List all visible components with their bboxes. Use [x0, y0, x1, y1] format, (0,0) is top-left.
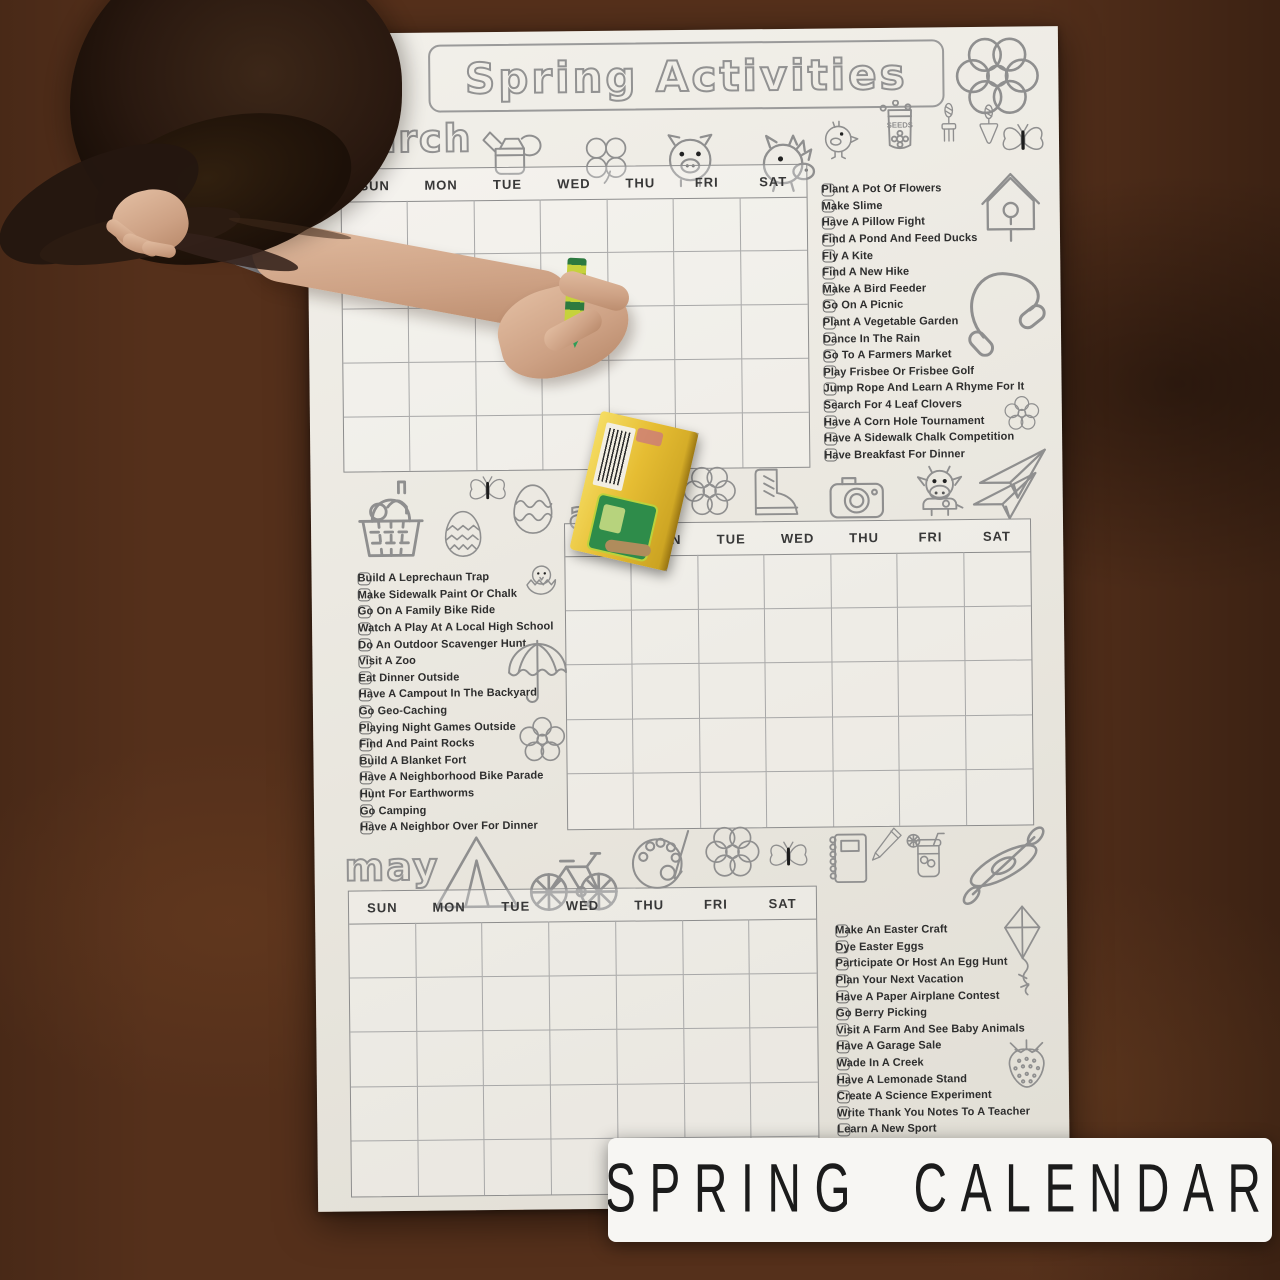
calendar-cell — [833, 717, 900, 772]
day-header: TUE — [698, 522, 765, 555]
calendar-cell — [833, 771, 900, 826]
calendar-cell — [417, 1031, 484, 1086]
checklist-item-label: Jump Rope And Learn A Rhyme For It — [824, 381, 1025, 395]
day-header: TUE — [474, 168, 541, 201]
calendar-cell — [832, 607, 899, 662]
mason-jar-drink-icon — [900, 827, 957, 884]
spring-activities-poster: Spring Activities march SUNMONTUEWEDTHUF… — [306, 26, 1070, 1212]
calendar-cell — [483, 976, 550, 1031]
calendar-cell — [750, 973, 817, 1028]
calendar-cell — [616, 920, 683, 975]
checklist-item-label: Make A Bird Feeder — [822, 282, 926, 295]
calendar-cell — [344, 417, 411, 472]
calendar-cell — [549, 921, 616, 976]
checklist-item-label: Write Thank You Notes To A Teacher — [837, 1105, 1030, 1119]
flower-icon — [702, 823, 763, 884]
checklist-item-label: Have A Sidewalk Chalk Competition — [824, 431, 1014, 445]
checklist-item-label: Participate Or Host An Egg Hunt — [836, 956, 1008, 970]
calendar-cell — [609, 360, 676, 415]
may-label: may — [344, 845, 439, 890]
calendar-cell — [684, 1029, 751, 1084]
calendar-cell — [343, 309, 410, 364]
calendar-cell — [765, 553, 832, 608]
day-header: THU — [607, 166, 674, 199]
calendar-cell — [741, 251, 808, 306]
calendar-cell — [699, 663, 766, 718]
calendar-cell — [418, 1141, 485, 1196]
checklist-item-label: Find And Paint Rocks — [359, 737, 474, 750]
strawberry-icon — [996, 1034, 1057, 1095]
checklist-item-label: Find A New Hike — [822, 266, 909, 279]
calendar-cell — [477, 416, 544, 471]
calendar-cell — [832, 662, 899, 717]
checklist-item-label: Have A Garage Sale — [836, 1040, 941, 1053]
calendar-cell — [766, 663, 833, 718]
cow-icon — [906, 457, 973, 524]
calendar-cell — [766, 717, 833, 772]
day-header: FRI — [897, 520, 964, 553]
checklist-item-label: Have A Pillow Fight — [822, 216, 925, 229]
calendar-cell — [550, 975, 617, 1030]
checklist-item-label: Plan Your Next Vacation — [836, 973, 964, 986]
calendar-cell — [765, 608, 832, 663]
calendar-cell — [675, 359, 742, 414]
calendar-cell — [550, 1030, 617, 1085]
calendar-cell — [350, 977, 417, 1032]
checklist-item-label: Build A Blanket Fort — [359, 754, 466, 767]
calendar-cell — [700, 773, 767, 828]
checklist-item-label: Playing Night Games Outside — [359, 720, 516, 734]
checklist-item-label: Have A Lemonade Stand — [837, 1073, 967, 1086]
checklist-item-label: Create A Science Experiment — [837, 1089, 992, 1103]
calendar-cell — [699, 609, 766, 664]
calendar-cell — [351, 1087, 418, 1142]
day-header: WED — [541, 167, 608, 200]
door-trim — [0, 183, 90, 835]
checklist-item-label: Learn A New Sport — [837, 1123, 936, 1136]
kayak-icon — [958, 820, 1049, 911]
calendar-cell — [966, 715, 1033, 770]
checklist-item-label: Go On A Picnic — [823, 299, 904, 312]
calendar-cell — [897, 552, 964, 607]
checklist-item-label: Dance In The Rain — [823, 332, 920, 345]
calendar-cell — [740, 197, 807, 252]
calendar-cell — [683, 919, 750, 974]
checklist-item-label: Do An Outdoor Scavenger Hunt — [358, 637, 526, 651]
umbrella-icon — [502, 639, 573, 710]
calendar-cell — [742, 413, 809, 468]
checklist-item-label: Go To A Farmers Market — [823, 348, 951, 361]
calendar-cell — [351, 1141, 418, 1196]
calendar-cell — [418, 1086, 485, 1141]
calendar-cell — [683, 974, 750, 1029]
calendar-cell — [742, 359, 809, 414]
calendar-cell — [964, 606, 1031, 661]
checklist-item-label: Dye Easter Eggs — [835, 940, 923, 953]
checklist-item-label: Watch A Play At A Local High School — [358, 620, 554, 634]
calendar-cell — [485, 1140, 552, 1195]
picnic-basket-icon — [340, 471, 441, 572]
day-header: WED — [764, 522, 831, 555]
calendar-cell — [684, 1083, 751, 1138]
april-calendar-grid — [565, 551, 1033, 829]
day-header: MON — [408, 168, 475, 201]
checklist-item-label: Go Camping — [360, 804, 427, 817]
calendar-cell — [410, 416, 477, 471]
calendar-cell — [416, 922, 483, 977]
day-header: SAT — [964, 519, 1031, 552]
kite-icon — [991, 902, 1054, 999]
calendar-cell — [965, 661, 1032, 716]
calendar-cell — [741, 305, 808, 360]
calendar-cell — [633, 719, 700, 774]
calendar-cell — [483, 921, 550, 976]
photo-scene: Spring Activities march SUNMONTUEWEDTHUF… — [0, 0, 1280, 1280]
easter-egg-wavy-icon — [503, 479, 564, 540]
checklist-item-label: Have A Corn Hole Tournament — [824, 414, 985, 428]
calendar-cell — [831, 553, 898, 608]
calendar-cell — [698, 554, 765, 609]
checklist-item-label: Play Frisbee Or Frisbee Golf — [823, 365, 974, 379]
calendar-cell — [416, 977, 483, 1032]
day-header: SAT — [749, 887, 816, 920]
day-header: THU — [616, 888, 683, 921]
butterfly-icon — [997, 112, 1050, 165]
checklist-item-label: Have A Neighborhood Bike Parade — [360, 770, 544, 784]
checklist-item-label: Make Slime — [822, 200, 883, 213]
calendar-cell — [674, 251, 741, 306]
checklist-item-label: Have A Paper Airplane Contest — [836, 989, 1000, 1003]
calendar-cell — [751, 1082, 818, 1137]
checklist-march: Plant A Pot Of Flowers Make Slime Have A… — [821, 179, 1060, 464]
calendar-cell — [899, 661, 966, 716]
calendar-cell — [675, 305, 742, 360]
april-calendar: SUNMONTUEWEDTHUFRISAT — [564, 518, 1034, 830]
calendar-cell — [350, 1032, 417, 1087]
checklist-item: Learn A New Sport — [837, 1119, 1073, 1138]
checklist-item-label: Build A Leprechaun Trap — [357, 571, 489, 584]
checklist-item-label: Fly A Kite — [822, 250, 873, 263]
calendar-cell — [900, 770, 967, 825]
seeds-packet-icon — [867, 99, 934, 166]
checklist-item-label: Go Geo-Caching — [359, 705, 447, 718]
day-header: TUE — [482, 889, 549, 922]
barcode — [592, 422, 636, 491]
poster-title: Spring Activities — [465, 49, 908, 103]
checklist-item-label: Visit A Zoo — [358, 655, 416, 668]
checklist-item-label: Find A Pond And Feed Ducks — [822, 232, 978, 246]
chick-icon — [813, 110, 868, 165]
calendar-cell — [751, 1028, 818, 1083]
checklist-item-label: Plant A Vegetable Garden — [823, 315, 959, 328]
flower-icon — [513, 709, 572, 768]
product-label-text: SPRING CALENDAR — [608, 1151, 1272, 1229]
calendar-cell — [899, 716, 966, 771]
calendar-cell — [474, 200, 541, 255]
calendar-cell — [484, 1031, 551, 1086]
checklist-item-label: Make Sidewalk Paint Or Chalk — [358, 588, 517, 602]
calendar-cell — [964, 551, 1031, 606]
calendar-cell — [898, 607, 965, 662]
calendar-cell — [767, 772, 834, 827]
calendar-cell — [966, 770, 1033, 825]
calendar-cell — [349, 923, 416, 978]
calendar-cell — [617, 1029, 684, 1084]
checklist-item-label: Search For 4 Leaf Clovers — [824, 398, 962, 411]
calendar-cell — [618, 1084, 685, 1139]
checklist-item-label: Hunt For Earthworms — [360, 787, 474, 800]
calendar-cell — [541, 199, 608, 254]
calendar-cell — [484, 1085, 551, 1140]
calendar-cell — [632, 609, 699, 664]
box-label — [635, 427, 663, 446]
calendar-cell — [674, 197, 741, 252]
easter-egg-zigzag-icon — [435, 506, 492, 563]
checklist-item-label: Plant A Pot Of Flowers — [821, 183, 941, 196]
day-header: WED — [549, 889, 616, 922]
checklist-item-label: Eat Dinner Outside — [359, 671, 460, 684]
day-header: SUN — [349, 891, 416, 924]
checklist-item-label: Wade In A Creek — [837, 1057, 924, 1070]
calendar-cell — [410, 362, 477, 417]
calendar-cell — [551, 1085, 618, 1140]
calendar-cell — [700, 718, 767, 773]
calendar-cell — [633, 664, 700, 719]
day-header: MON — [416, 890, 483, 923]
checklist-item-label: Go Berry Picking — [836, 1007, 927, 1020]
butterfly-icon — [764, 831, 813, 880]
checklist-item-label: Make An Easter Craft — [835, 924, 947, 937]
calendar-cell — [634, 773, 701, 828]
calendar-cell — [343, 363, 410, 418]
calendar-cell — [617, 975, 684, 1030]
calendar-cell — [749, 919, 816, 974]
day-header: FRI — [682, 887, 749, 920]
day-header: THU — [831, 521, 898, 554]
checklist-item-label: Go On A Family Bike Ride — [358, 605, 495, 618]
day-header: FRI — [673, 165, 740, 198]
calendar-cell — [607, 198, 674, 253]
product-label-banner: SPRING CALENDAR — [608, 1138, 1272, 1242]
boot-icon — [738, 461, 807, 530]
day-header: SAT — [740, 165, 807, 198]
